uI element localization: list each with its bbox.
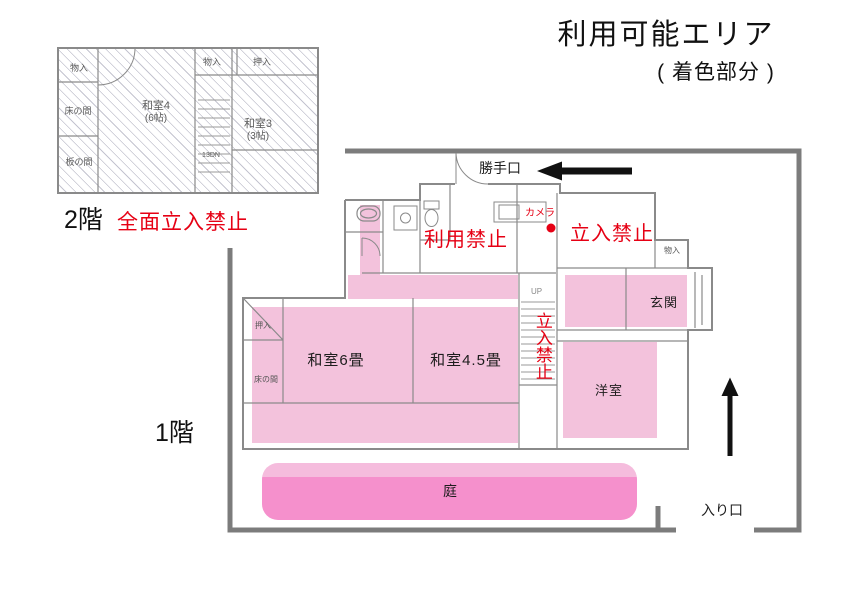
2f-itanoma-label: 板の間 — [65, 158, 92, 167]
2f-restriction-label: 全面立入禁止 — [117, 212, 249, 234]
usable-area-washitsu-rooms — [252, 307, 518, 443]
2f-stairs-note: 13DN — [202, 152, 220, 159]
1f-tokonoma-label: 床の間 — [254, 376, 278, 384]
2f-floor-label: 2階 — [64, 207, 103, 233]
2f-washitsu4-size-label: (6帖) — [145, 114, 167, 125]
1f-floor-label: 1階 — [155, 420, 194, 446]
2f-washitsu3-label: 和室3 — [244, 119, 272, 131]
arrow-up-icon — [722, 378, 739, 457]
second-floor-hatch-pattern — [58, 48, 318, 193]
1f-oshiire-label: 押入 — [255, 322, 271, 330]
1f-keep-out-upper-label: 立入禁止 — [570, 224, 654, 245]
usable-area-bath-corridor — [360, 205, 380, 285]
1f-washitsu45-label: 和室4.5畳 — [430, 353, 502, 369]
1f-keep-out-stairs-label: 立入禁止 — [533, 312, 551, 380]
1f-washitsu6-label: 和室6畳 — [307, 353, 364, 369]
floor-plan-page: 利用可能エリア ( 着色部分 ) 物入 物入 押入 床の間 板の間 和室4 (6… — [0, 0, 842, 595]
2f-washitsu3-size-label: (3帖) — [247, 132, 269, 143]
site-entry-label: 入り口 — [701, 503, 743, 518]
arrow-left-icon — [537, 162, 632, 181]
1f-no-use-label: 利用禁止 — [424, 230, 508, 251]
2f-tokonoma-label: 床の間 — [64, 107, 91, 116]
2f-closet-top-center-label: 物入 — [203, 58, 221, 67]
1f-back-door-label: 勝手口 — [479, 161, 521, 176]
2f-washitsu4-label: 和室4 — [142, 101, 170, 113]
1f-closet-label: 物入 — [664, 247, 680, 255]
2f-oshiire-label: 押入 — [253, 58, 271, 67]
usable-area-hallway — [348, 275, 518, 299]
1f-stairs-up-label: UP — [531, 288, 542, 296]
page-subtitle: ( 着色部分 ) — [657, 62, 775, 84]
2f-closet-top-left-label: 物入 — [70, 64, 88, 73]
washbasin-icon — [394, 206, 417, 230]
toilet-icon — [424, 201, 439, 227]
1f-entrance-hall-label: 玄関 — [650, 296, 678, 310]
1f-garden-label: 庭 — [443, 484, 457, 499]
page-title: 利用可能エリア — [557, 20, 774, 50]
1f-camera-label: カメラ — [525, 209, 555, 220]
1f-western-room-label: 洋室 — [595, 384, 623, 398]
camera-dot — [547, 224, 556, 233]
